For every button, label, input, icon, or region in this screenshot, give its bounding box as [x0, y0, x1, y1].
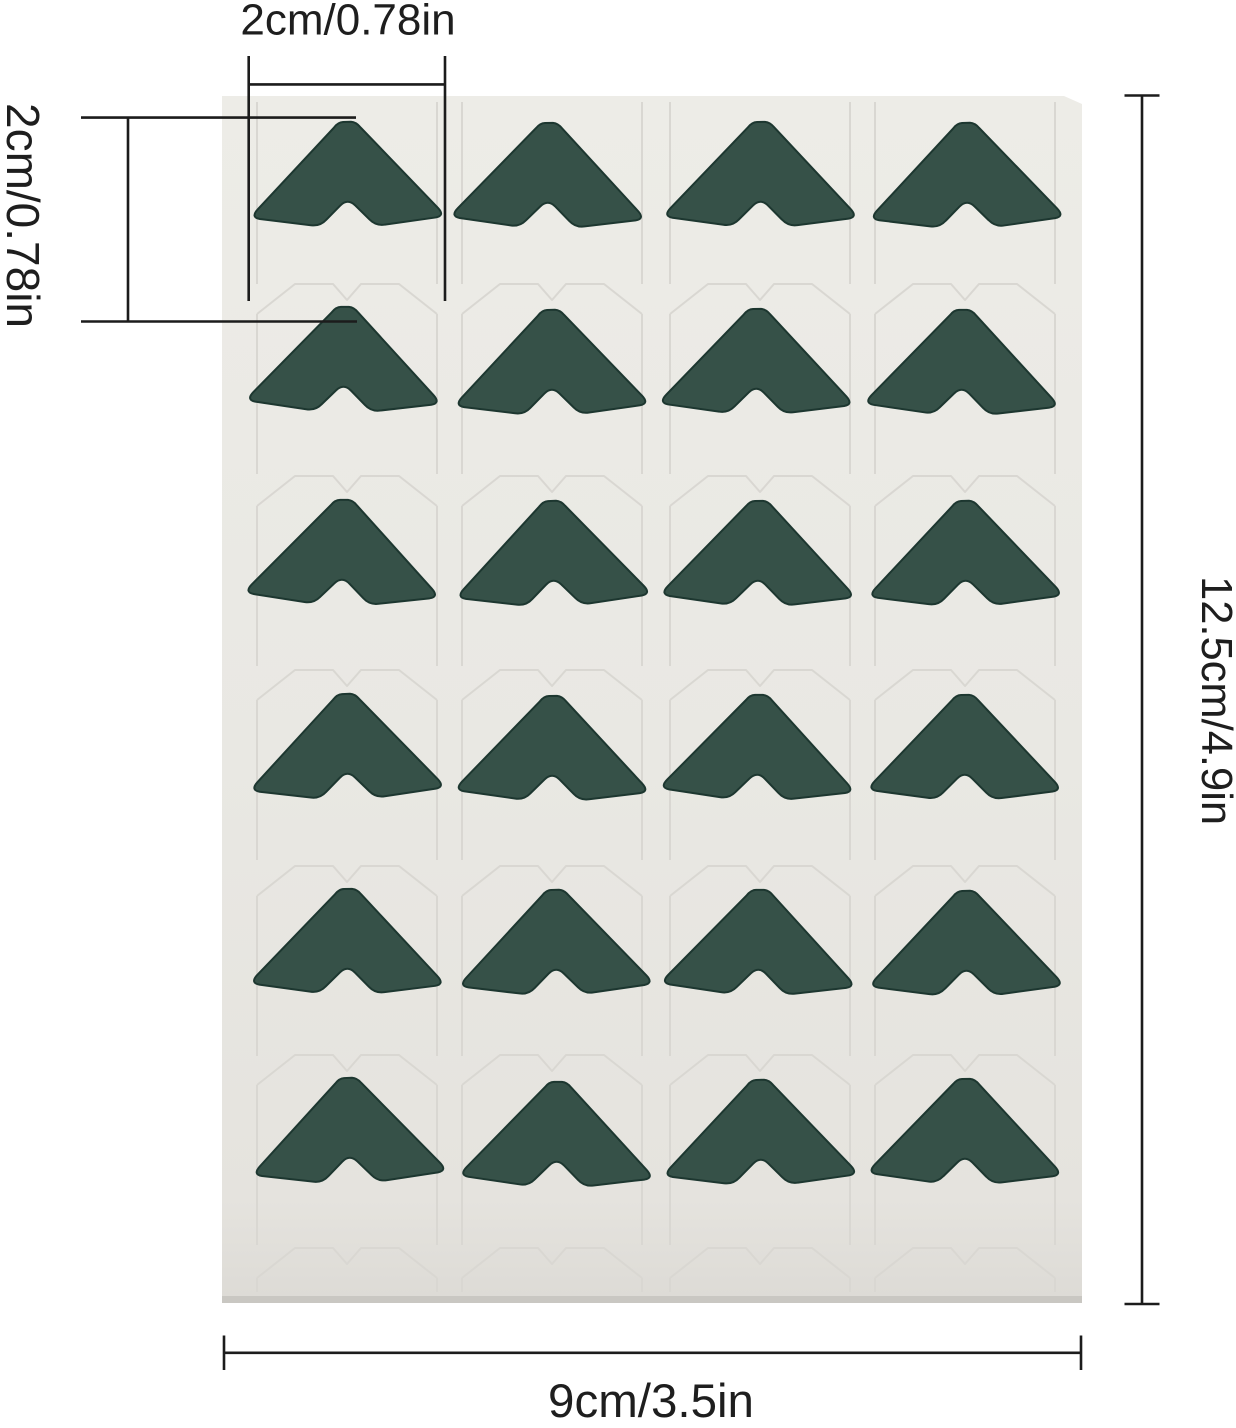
svg-text:9cm/3.5in: 9cm/3.5in [548, 1375, 754, 1428]
svg-text:12.5cm/4.9in: 12.5cm/4.9in [1192, 576, 1236, 825]
svg-text:2cm/0.78in: 2cm/0.78in [0, 103, 49, 328]
svg-text:2cm/0.78in: 2cm/0.78in [240, 0, 455, 45]
